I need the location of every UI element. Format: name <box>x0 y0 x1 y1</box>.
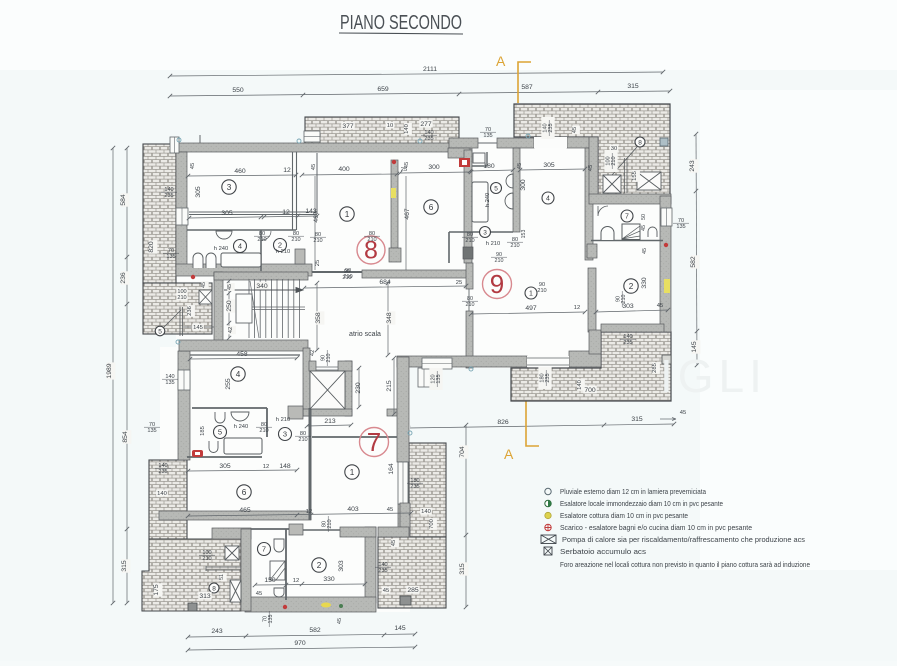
svg-text:12: 12 <box>283 167 291 174</box>
svg-text:700: 700 <box>584 387 596 394</box>
svg-text:330: 330 <box>323 576 335 583</box>
svg-text:45: 45 <box>657 303 663 309</box>
svg-text:305: 305 <box>543 162 555 169</box>
svg-text:164: 164 <box>388 463 395 475</box>
svg-text:587: 587 <box>521 84 533 91</box>
svg-text:235: 235 <box>623 340 632 346</box>
svg-text:45: 45 <box>383 588 389 594</box>
svg-text:210: 210 <box>291 237 300 243</box>
svg-text:155: 155 <box>632 171 638 181</box>
svg-text:305: 305 <box>221 210 233 217</box>
svg-text:5: 5 <box>494 185 498 192</box>
svg-text:460: 460 <box>234 168 246 175</box>
svg-text:1: 1 <box>350 468 355 477</box>
svg-text:1: 1 <box>529 291 533 298</box>
svg-text:10: 10 <box>387 123 393 129</box>
svg-text:210: 210 <box>621 295 627 304</box>
svg-text:4: 4 <box>236 370 241 379</box>
svg-text:145: 145 <box>394 625 406 632</box>
svg-text:377: 377 <box>342 123 354 130</box>
svg-text:45: 45 <box>588 165 594 171</box>
svg-text:PIANO SECONDO: PIANO SECONDO <box>340 12 462 34</box>
svg-text:12: 12 <box>306 509 312 515</box>
svg-text:51: 51 <box>219 574 225 580</box>
svg-text:582: 582 <box>309 627 321 634</box>
svg-text:IGLI: IGLI <box>660 350 767 402</box>
svg-text:3: 3 <box>227 183 232 192</box>
svg-text:340: 340 <box>256 283 268 290</box>
svg-text:6: 6 <box>242 488 247 497</box>
svg-text:Serbatoio accumulo acs: Serbatoio accumulo acs <box>560 547 646 556</box>
svg-text:235: 235 <box>378 568 387 574</box>
svg-text:236: 236 <box>187 306 193 316</box>
svg-text:4: 4 <box>546 196 550 203</box>
svg-text:h 240: h 240 <box>234 424 249 430</box>
svg-text:315: 315 <box>627 83 639 90</box>
svg-text:4: 4 <box>238 242 242 251</box>
svg-text:210: 210 <box>298 437 307 443</box>
svg-text:1: 1 <box>345 210 350 219</box>
svg-text:185: 185 <box>200 426 206 436</box>
svg-text:235: 235 <box>424 136 433 142</box>
svg-text:140: 140 <box>577 380 583 390</box>
svg-text:210: 210 <box>257 237 266 243</box>
svg-text:45: 45 <box>391 540 397 546</box>
svg-text:atrio scala: atrio scala <box>349 331 381 338</box>
svg-text:210: 210 <box>259 428 268 434</box>
svg-text:497: 497 <box>525 305 537 312</box>
svg-text:970: 970 <box>294 640 306 647</box>
svg-text:210: 210 <box>465 238 474 244</box>
svg-text:243: 243 <box>211 628 223 635</box>
svg-text:330: 330 <box>641 277 648 289</box>
svg-text:1989: 1989 <box>106 363 113 378</box>
svg-text:467: 467 <box>404 208 411 220</box>
svg-text:45: 45 <box>190 163 196 169</box>
svg-text:348: 348 <box>386 312 393 324</box>
svg-text:2111: 2111 <box>423 66 437 73</box>
svg-text:277: 277 <box>420 121 432 128</box>
svg-text:659: 659 <box>377 86 389 93</box>
svg-text:210: 210 <box>510 243 519 249</box>
svg-text:42: 42 <box>228 327 234 333</box>
svg-text:285: 285 <box>652 363 658 373</box>
svg-text:255: 255 <box>225 378 232 390</box>
svg-text:143: 143 <box>305 208 317 215</box>
svg-text:140: 140 <box>421 509 431 515</box>
svg-text:7: 7 <box>262 545 266 554</box>
svg-text:215: 215 <box>386 380 393 392</box>
svg-text:12: 12 <box>293 578 299 584</box>
svg-text:12: 12 <box>574 305 580 311</box>
svg-text:45: 45 <box>517 163 523 169</box>
svg-text:25: 25 <box>315 260 321 266</box>
svg-text:h 240: h 240 <box>214 246 229 252</box>
svg-text:826: 826 <box>497 419 509 426</box>
svg-text:50: 50 <box>641 214 647 220</box>
svg-text:h 210: h 210 <box>276 417 291 423</box>
svg-text:210: 210 <box>466 302 475 308</box>
svg-text:140: 140 <box>404 124 410 134</box>
svg-text:135: 135 <box>165 380 174 386</box>
svg-text:Pluviale esterno diam 12 cm in: Pluviale esterno diam 12 cm in lamiera p… <box>560 487 706 496</box>
svg-text:582: 582 <box>690 256 697 268</box>
svg-text:2: 2 <box>629 282 634 291</box>
svg-text:9: 9 <box>490 269 504 299</box>
svg-text:5: 5 <box>218 428 222 437</box>
svg-text:235: 235 <box>164 193 173 199</box>
svg-text:303: 303 <box>338 560 345 572</box>
svg-text:235: 235 <box>410 484 419 490</box>
svg-text:236: 236 <box>120 272 127 284</box>
svg-text:150: 150 <box>264 577 276 584</box>
svg-text:210: 210 <box>342 275 351 281</box>
svg-text:135: 135 <box>483 133 492 139</box>
svg-text:358: 358 <box>315 312 322 324</box>
svg-text:45: 45 <box>641 225 647 231</box>
svg-text:153: 153 <box>521 230 527 239</box>
svg-text:A: A <box>504 446 514 462</box>
svg-text:45: 45 <box>680 410 686 416</box>
svg-text:45: 45 <box>256 591 262 597</box>
svg-text:45: 45 <box>387 507 393 513</box>
svg-text:315: 315 <box>121 560 128 572</box>
svg-text:h 210: h 210 <box>276 249 291 255</box>
svg-text:210: 210 <box>202 556 211 562</box>
svg-text:145: 145 <box>193 325 203 331</box>
svg-text:210: 210 <box>367 237 376 243</box>
svg-text:465: 465 <box>239 507 251 514</box>
svg-text:550: 550 <box>232 87 244 94</box>
svg-text:8: 8 <box>212 585 216 592</box>
svg-text:12: 12 <box>282 209 290 216</box>
svg-text:8: 8 <box>638 139 642 146</box>
svg-text:7: 7 <box>625 214 629 221</box>
svg-text:Foro areazione nel locali cott: Foro areazione nel locali cottura non pr… <box>560 560 810 569</box>
svg-text:45: 45 <box>642 248 648 254</box>
svg-text:45: 45 <box>311 164 317 170</box>
svg-text:305: 305 <box>219 463 231 470</box>
svg-text:175: 175 <box>153 584 160 596</box>
svg-text:45: 45 <box>337 618 343 624</box>
svg-text:42: 42 <box>310 350 316 356</box>
svg-text:285: 285 <box>407 587 419 594</box>
svg-text:Scarico - esalatore bagni e/o: Scarico - esalatore bagni e/o cucina dia… <box>560 523 752 532</box>
svg-text:7: 7 <box>367 427 381 457</box>
svg-text:210: 210 <box>313 238 322 244</box>
svg-text:2: 2 <box>317 561 322 570</box>
svg-text:210: 210 <box>537 288 546 294</box>
svg-text:45: 45 <box>404 162 410 168</box>
svg-text:854: 854 <box>122 431 129 443</box>
svg-text:25: 25 <box>456 280 462 286</box>
svg-text:704: 704 <box>459 446 466 458</box>
svg-text:250: 250 <box>226 300 233 312</box>
svg-text:45: 45 <box>572 127 578 133</box>
svg-text:148: 148 <box>279 463 291 470</box>
svg-text:584: 584 <box>120 194 127 206</box>
svg-text:6: 6 <box>429 203 434 212</box>
svg-text:210: 210 <box>177 295 186 301</box>
svg-text:400: 400 <box>338 166 350 173</box>
svg-text:315: 315 <box>631 416 643 423</box>
svg-text:305: 305 <box>195 186 202 198</box>
svg-text:135: 135 <box>268 615 274 624</box>
svg-text:h 210: h 210 <box>486 241 501 247</box>
svg-text:Esalatore cottura diam 10 cm i: Esalatore cottura diam 10 cm in pvc pesa… <box>560 511 688 520</box>
svg-text:684: 684 <box>379 279 391 286</box>
svg-text:210: 210 <box>326 354 332 363</box>
svg-text:700: 700 <box>429 519 435 529</box>
svg-text:230: 230 <box>355 382 362 394</box>
svg-text:135: 135 <box>676 224 685 230</box>
svg-text:A: A <box>496 53 506 69</box>
svg-text:210: 210 <box>495 258 504 264</box>
svg-text:Esalatore locale immondezzaio: Esalatore locale immondezzaio diam 10 cm… <box>560 499 723 508</box>
svg-text:300: 300 <box>520 179 527 191</box>
svg-text:243: 243 <box>689 160 696 172</box>
svg-text:h 240: h 240 <box>485 193 491 208</box>
svg-text:135: 135 <box>147 428 156 434</box>
svg-text:3: 3 <box>283 430 287 439</box>
svg-text:213: 213 <box>324 418 336 425</box>
svg-text:Pompa di calore sia per riscal: Pompa di calore sia per riscaldamento/ra… <box>562 535 805 544</box>
svg-text:12: 12 <box>263 464 269 470</box>
svg-text:313: 313 <box>199 593 211 600</box>
svg-text:3: 3 <box>483 229 487 236</box>
svg-text:820: 820 <box>148 241 155 253</box>
svg-text:135: 135 <box>166 254 175 260</box>
svg-text:235: 235 <box>158 469 167 475</box>
svg-text:180: 180 <box>483 163 495 170</box>
svg-text:315: 315 <box>459 563 466 575</box>
svg-text:403: 403 <box>347 506 359 513</box>
svg-text:140: 140 <box>157 491 167 497</box>
svg-text:45: 45 <box>201 282 207 288</box>
svg-text:300: 300 <box>428 164 440 171</box>
svg-text:45: 45 <box>227 284 233 290</box>
svg-text:5: 5 <box>158 328 162 335</box>
